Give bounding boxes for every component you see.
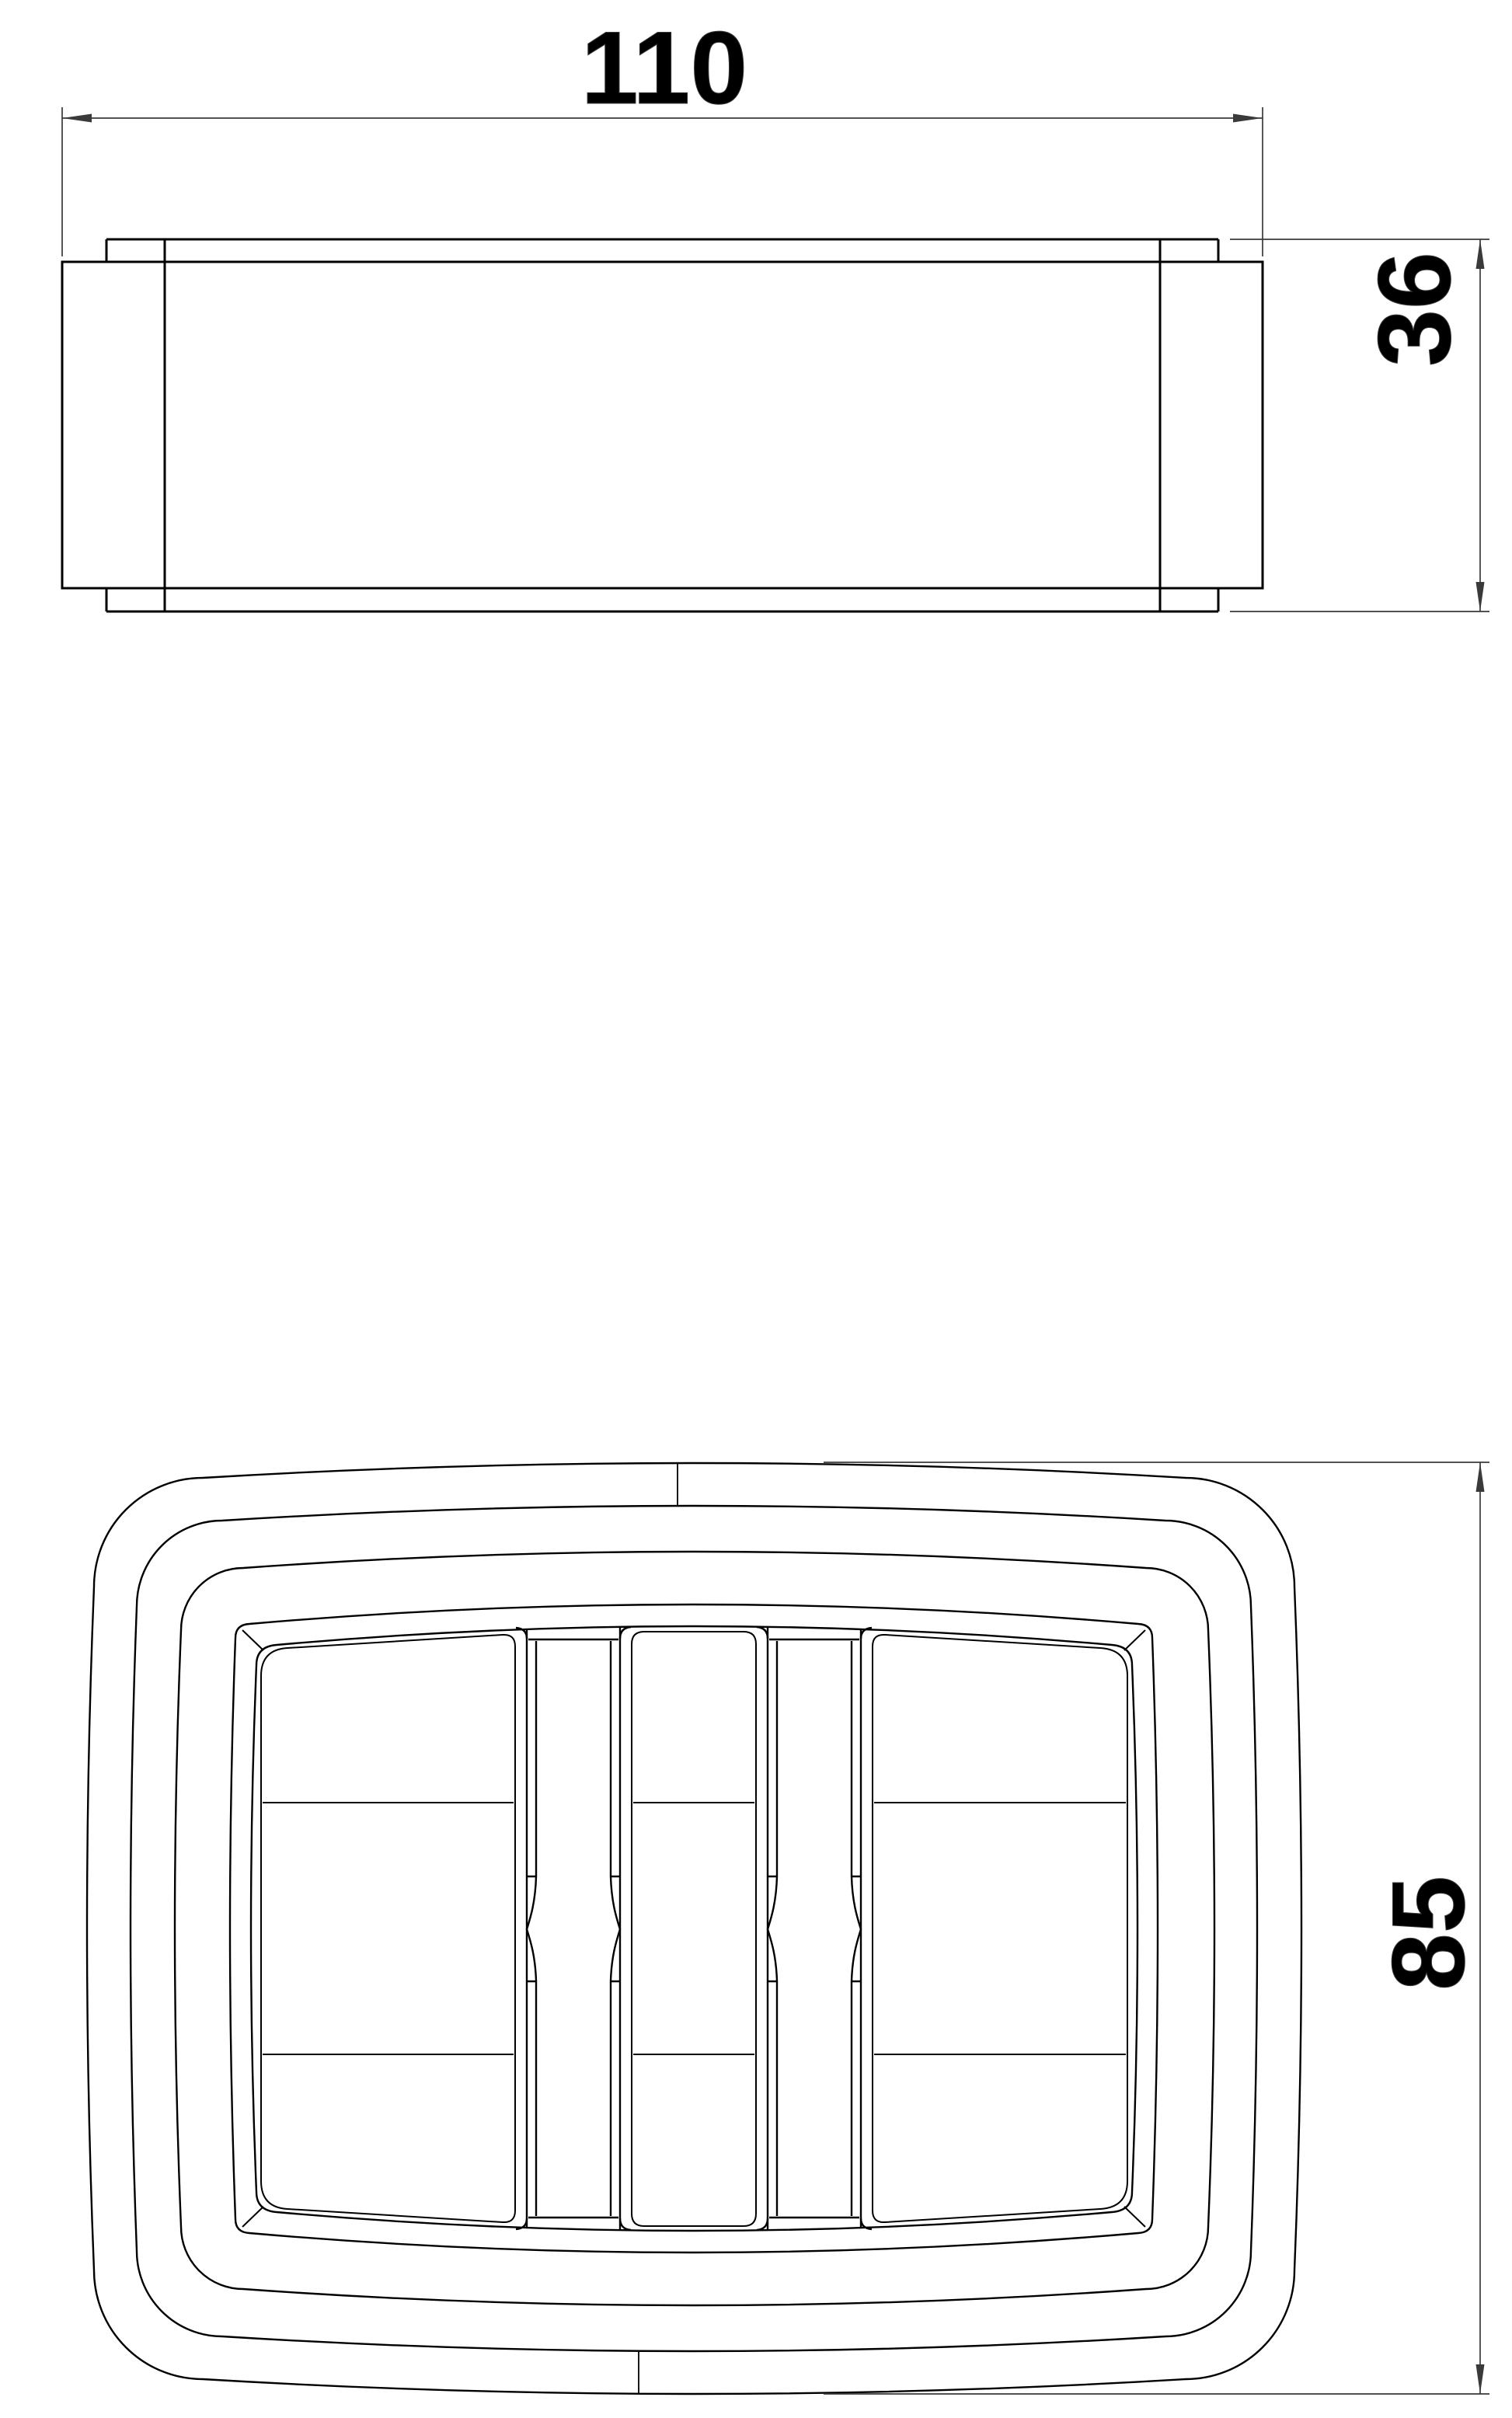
plan-view	[87, 1463, 1301, 2394]
dimension-label-85: 85	[1371, 1876, 1486, 1991]
technical-drawing-canvas: 110 36	[0, 0, 1512, 2418]
shell-outline-outer	[87, 1463, 1301, 2394]
shell-outline-2	[131, 1506, 1257, 2351]
flex-bar-left-waist-ticks	[527, 1876, 620, 1981]
arrow-down-icon	[1476, 582, 1485, 611]
dimension-side-height: 36	[1230, 239, 1489, 611]
dimension-plan-height: 85	[824, 1462, 1489, 2394]
dimension-label-36: 36	[1357, 252, 1472, 367]
flex-bar-left-inner-line-a	[527, 1641, 536, 2216]
mount-strip-bottom	[106, 588, 1218, 611]
flex-bar-right-end-edges	[769, 1639, 859, 2218]
side-elevation-view	[62, 239, 1263, 611]
flex-bar-right-outer-lines	[768, 1627, 861, 2230]
flex-bar-right-waist-ticks	[768, 1876, 861, 1981]
drawing-sheet: 110 36	[0, 0, 1512, 2418]
panel-right-outline	[873, 1635, 1127, 2222]
panel-middle-outline	[632, 1632, 756, 2226]
flex-bar-right-inner-line-b	[852, 1641, 861, 2216]
flex-bar-left	[516, 1627, 631, 2230]
end-cap-divider-lines	[165, 239, 1160, 611]
flex-bar-right-fillets	[757, 1627, 872, 2230]
arrow-left-icon	[62, 114, 92, 123]
arrow-down-icon	[1476, 2364, 1485, 2394]
arrow-up-icon	[1476, 239, 1485, 269]
flex-bar-left-inner-line-b	[611, 1641, 620, 2216]
dimension-label-110: 110	[581, 11, 748, 126]
panel-contour-lines	[263, 1803, 1126, 2054]
flex-bar-left-outer-lines	[527, 1627, 620, 2230]
panel-left-outline	[261, 1635, 515, 2222]
corner-bevel-lines	[242, 1630, 1145, 2227]
flex-bar-right	[757, 1627, 872, 2230]
cover-body-outline	[62, 262, 1263, 588]
flex-bar-left-fillets	[516, 1627, 631, 2230]
arrow-up-icon	[1476, 1462, 1485, 1492]
rim-outer-outline	[230, 1604, 1158, 2253]
parting-seam-marks	[639, 1463, 678, 2394]
flex-bar-right-inner-line-a	[768, 1641, 777, 2216]
dimension-width: 110	[62, 11, 1263, 256]
extension-lines-110	[62, 107, 1263, 256]
shell-outline-3	[175, 1552, 1214, 2305]
opening-rim-outline	[251, 1626, 1137, 2231]
arrow-right-icon	[1233, 114, 1263, 123]
flex-bar-left-end-edges	[528, 1639, 618, 2218]
mount-strip-top	[106, 239, 1218, 262]
